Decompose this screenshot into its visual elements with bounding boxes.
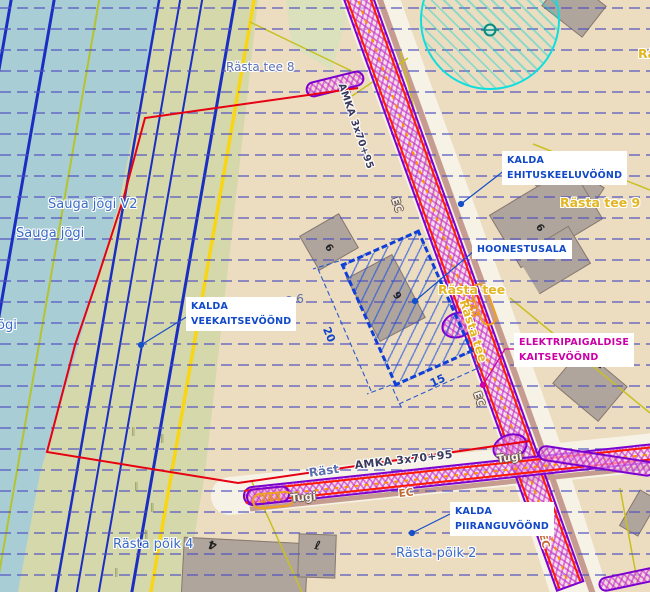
grass-mark: ‖ [160,434,166,444]
annotation-line: HOONESTUSALA [477,242,567,257]
water-label-jogi-partial: õgi [0,318,17,333]
grass-mark: ‖ [131,427,137,437]
street-label-rasta-tee-8: Rästa tee 8 [226,60,294,74]
grass-mark: ‖ [134,482,140,492]
annotation-line: KALDA [455,504,549,519]
tugi-label: Tugi [290,490,317,505]
annotation-line: EHITUSKEELUVÖÖND [507,168,622,183]
annotation-line: PIIRANGUVÖÖND [455,519,549,534]
map-canvas[interactable]: Rästa tee 8 Rä Rästa tee 9 Rästa tee Räs… [0,0,650,592]
street-label-rasta-tee-9: Rästa tee 9 [560,195,640,210]
annotation-hoonestusala: HOONESTUSALA [472,240,572,259]
street-label-rasta-poik-4: Rästa põik 4 [113,537,193,552]
annotation-piiranguvoond: KALDA PIIRANGUVÖÖND [450,502,554,536]
pole-244-label: 244 [259,492,282,506]
ec-label: EC [398,486,414,499]
annotation-line: VEEKAITSEVÖÖND [191,314,291,329]
grass-mark: ‖ [114,568,120,578]
annotation-leader-lines [139,170,506,536]
street-label-rasta-poik-2: Rästa põik 2 [396,546,476,561]
annotation-line: KALDA [507,153,622,168]
annotation-veekaitsevoond: KALDA VEEKAITSEVÖÖND [186,297,296,331]
street-label-rasta-tee-clipped: Rä [638,46,650,61]
annotation-line: ELEKTRIPAIGALDISE [519,335,629,350]
water-label-sauga-jogi: Sauga jõgi [16,226,84,241]
annotation-line: KALDA [191,299,291,314]
grass-mark: ‖ [150,503,156,513]
annotation-line: KAITSEVÖÖND [519,350,629,365]
annotation-ehituskeeluvoond: KALDA EHITUSKEELUVÖÖND [502,151,627,185]
grass-mark: ‖ [144,530,150,540]
annotation-elektripaigaldise: ELEKTRIPAIGALDISE KAITSEVÖÖND [514,333,634,367]
water-label-sauga-jogi-v2: Sauga jõgi V2 [48,197,138,212]
